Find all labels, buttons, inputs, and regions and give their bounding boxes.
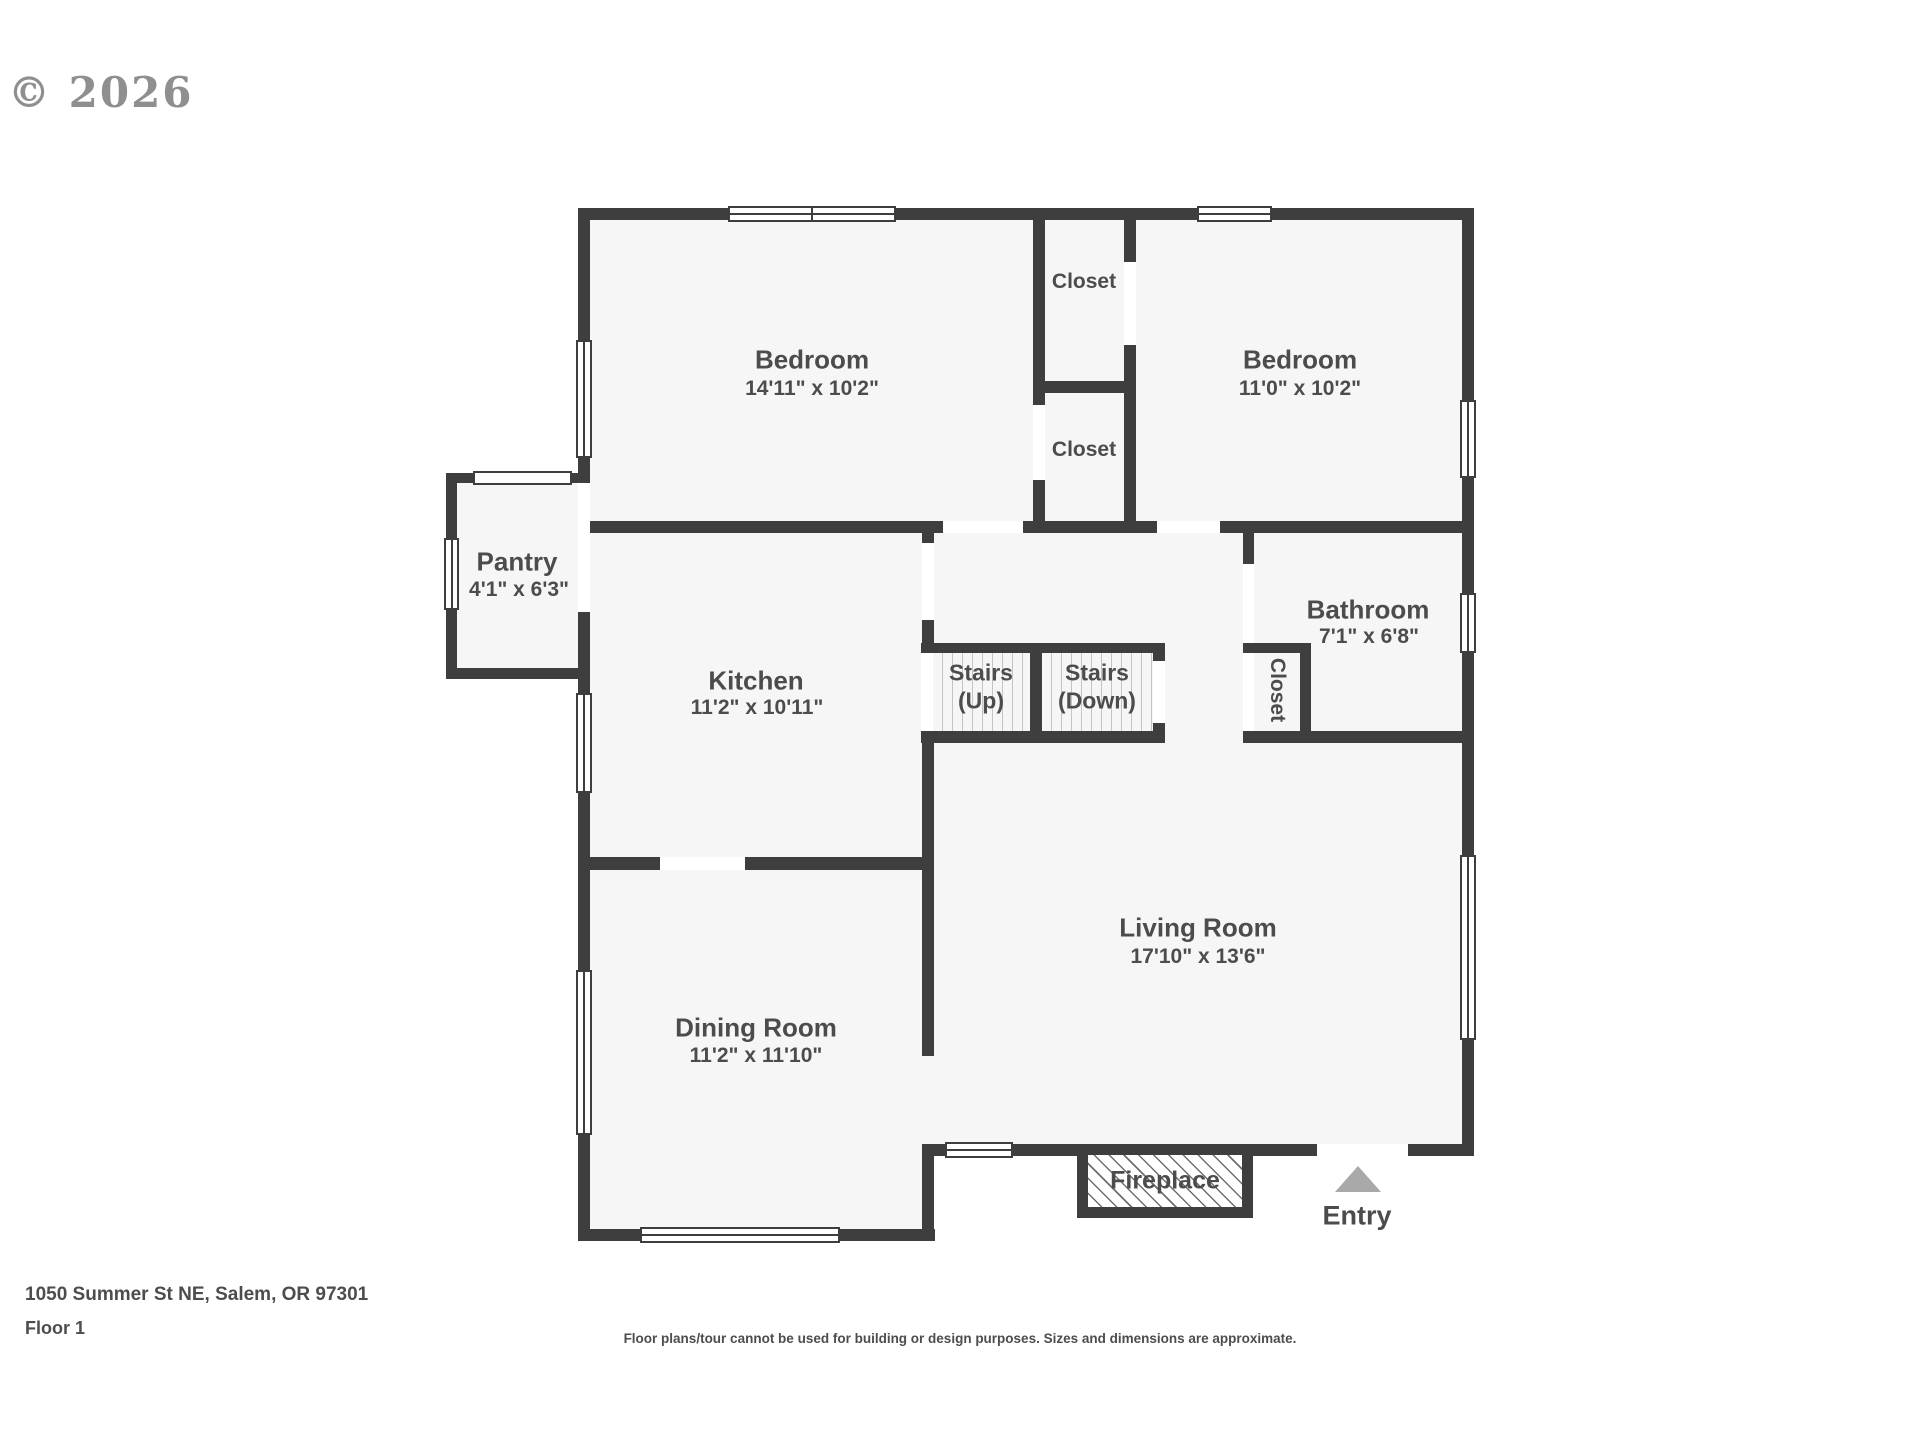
copyright-watermark: © 2026 [8,68,194,117]
stairs-down-label-2: (Down) [1058,688,1136,715]
wall-step-vertical [922,1144,934,1241]
disclaimer-text: Floor plans/tour cannot be used for buil… [0,1331,1920,1346]
wall-divider-stub-top [922,533,934,543]
wall-bathcloset-right [1300,643,1311,743]
bedroom1-top-window [728,206,896,222]
wall-bathroom-bottom [1243,731,1474,743]
dining-left-window [576,970,592,1135]
window-mullion [583,695,585,791]
closet-top-door-opening [1124,262,1136,345]
dining-bottom-window [640,1227,840,1243]
bathroom-closet-name: Closet [1265,658,1289,722]
bathroom-door-opening [1243,564,1254,643]
bedroom2-right-window [1460,400,1476,478]
entry-arrow-icon [1335,1166,1381,1192]
dining-room-dims: 11'2" x 11'10" [690,1044,823,1068]
bathroom-dims: 7'1" x 6'8" [1319,625,1419,649]
wall-closet-divider [1033,381,1136,393]
wall-stairs-bottom [921,731,1165,743]
property-address: 1050 Summer St NE, Salem, OR 97301 [25,1284,368,1306]
dining-living-opening [922,1056,934,1144]
bathroom-name: Bathroom [1307,595,1430,626]
floor-plan: © 2026 [0,0,1920,1440]
closet-bottom-door-opening [1033,405,1045,480]
wall-exterior-top [578,208,1474,220]
wall-divider-mid [922,620,934,643]
kitchen-dims: 11'2" x 10'11" [691,696,824,720]
wall-pantry-bottom [446,668,590,679]
wall-stairs-top [921,643,1165,653]
kitchen-name: Kitchen [708,666,803,697]
pantry-name: Pantry [477,547,558,578]
bedroom2-name: Bedroom [1243,345,1357,376]
window-mullion [583,972,585,1133]
living-floor [934,743,1462,1144]
bedroom1-left-window [576,340,592,458]
window-mullion [1467,857,1469,1038]
window-mullion [947,1149,1011,1151]
bathroom-right-window [1460,593,1476,653]
stairs-up-label-2: (Up) [958,688,1004,715]
entry-door-opening [1317,1144,1408,1156]
window-mullion [451,540,453,608]
bedroom1-name: Bedroom [755,345,869,376]
fireplace-label: Fireplace [1110,1167,1220,1196]
stairs-up-label-1: Stairs [949,660,1013,687]
stairs-down-label-1: Stairs [1065,660,1129,687]
living-bottom-window [945,1142,1013,1158]
wall-bathcloset-top [1243,643,1305,653]
kitchen-dining-floor [590,743,934,1229]
window-mullion [1467,402,1469,476]
bedroom1-door-opening [943,521,1023,533]
wall-divider-lower [922,743,934,1056]
kitchen-left-window [576,693,592,793]
entry-label: Entry [1322,1201,1391,1232]
dining-room-name: Dining Room [675,1013,837,1044]
window-mullion [642,1234,838,1236]
stairs-down-entry-opening [1153,661,1165,723]
pantry-top-window [473,471,572,485]
bedroom2-dims: 11'0" x 10'2" [1239,377,1361,401]
kitchen-hall-opening [922,543,934,620]
closet-bottom-name: Closet [1052,438,1116,462]
pantry-kitchen-opening [578,483,590,612]
closet-top-name: Closet [1052,270,1116,294]
wall-stairs-mid [1030,643,1042,743]
window-mullion [583,342,585,456]
window-mullion [1199,213,1270,215]
window-mullion [811,208,813,220]
living-room-dims: 17'10" x 13'6" [1130,945,1265,969]
wall-bedrooms-bottom [583,521,1474,533]
living-right-window [1460,855,1476,1040]
living-room-name: Living Room [1119,913,1276,944]
bedroom2-door-opening [1157,521,1220,533]
pantry-left-window [444,538,459,610]
pantry-dims: 4'1" x 6'3" [469,578,569,602]
bedroom1-dims: 14'11" x 10'2" [745,377,879,401]
bedroom2-top-window [1197,206,1272,222]
bathcloset-door-opening [1243,653,1254,731]
window-mullion [1467,595,1469,651]
kitchen-dining-door-opening [660,857,745,870]
wall-kitchen-dining [578,857,922,870]
stairs-up-entry-opening [921,653,933,731]
